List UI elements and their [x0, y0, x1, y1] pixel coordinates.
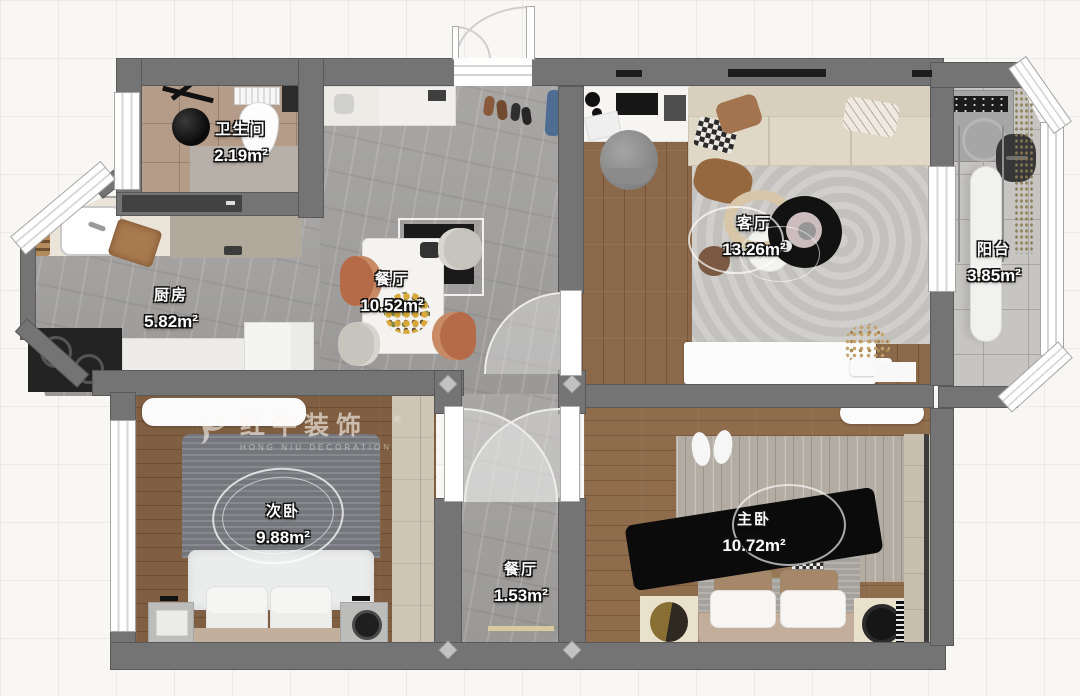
- room-label-kitchen: 厨房 5.82m²: [144, 284, 198, 332]
- bedroom2-door-leaf: [444, 406, 464, 502]
- entrance-sill: [454, 58, 532, 86]
- dining-chair-orange: [432, 312, 476, 360]
- room-name: 餐厅: [494, 558, 548, 579]
- moon-plate: [650, 602, 688, 642]
- bathroom-window: [114, 92, 140, 190]
- brand-subtitle: HONG NIU DECORATION: [240, 443, 392, 452]
- room-label-bathroom: 卫生间 2.19m²: [214, 118, 268, 166]
- room-label-dining: 餐厅 10.52m²: [360, 268, 423, 316]
- room-name: 阳台: [967, 238, 1021, 259]
- room-area: 1.53m²: [494, 586, 548, 606]
- room-name: 客厅: [722, 212, 785, 233]
- room-name: 厨房: [144, 284, 198, 305]
- balcony-right-window: [1040, 122, 1064, 356]
- side-shelf: [874, 362, 916, 382]
- wall-mark: [160, 596, 178, 601]
- master-door-leaf: [560, 406, 580, 502]
- dining-chair-gray: [338, 322, 380, 366]
- dining-chair-gray: [438, 228, 482, 270]
- brand-name: 红牛装饰: [240, 412, 368, 440]
- wall-top-left: [116, 58, 456, 86]
- door-handle: [226, 201, 235, 205]
- room-label-master: 主卧 10.72m²: [722, 508, 785, 556]
- wall-mark: [352, 596, 370, 601]
- window-dash: [616, 70, 642, 77]
- washer-panel: [952, 96, 1008, 112]
- window-dash: [728, 69, 826, 77]
- room-area: 10.72m²: [722, 536, 785, 556]
- photo-card: [156, 610, 188, 636]
- living-door-leaf: [560, 290, 582, 376]
- threshold-strip: [488, 626, 554, 631]
- room-area: 5.82m²: [144, 312, 198, 332]
- wall-kitchen-bottom: [92, 370, 464, 396]
- room-name: 卫生间: [214, 118, 268, 139]
- floor-plan-canvas: 红牛装饰 HONG NIU DECORATION ® 卫生间 2.19m² 厨房…: [0, 0, 1080, 696]
- room-area: 3.85m²: [967, 266, 1021, 286]
- ceiling-fan-body: [172, 108, 210, 146]
- vine-plant: [1014, 84, 1034, 254]
- room-name: 餐厅: [360, 268, 423, 289]
- room-label-hallway: 餐厅 1.53m²: [494, 558, 548, 606]
- room-name: 主卧: [722, 508, 785, 529]
- shoe: [496, 100, 508, 121]
- room-area: 10.52m²: [360, 296, 423, 316]
- entry-item: [428, 90, 446, 101]
- black-plate: [352, 610, 382, 640]
- room-area: 13.26m²: [722, 240, 785, 260]
- desk-speaker: [585, 92, 600, 107]
- counter-item: [224, 246, 242, 255]
- pole-line: [958, 126, 960, 262]
- table-vase: [420, 242, 440, 258]
- room-area: 2.19m²: [214, 146, 268, 166]
- wall-master-right: [930, 408, 954, 646]
- balcony-door-window: [928, 166, 956, 292]
- desk-pad: [664, 95, 686, 121]
- entrance-door-leaf-small: [452, 26, 459, 60]
- room-name: 次卧: [256, 500, 310, 521]
- brand-watermark: 红牛装饰 HONG NIU DECORATION ®: [196, 414, 401, 452]
- wall-living-bottom: [558, 384, 934, 408]
- bedroom2-window: [110, 420, 136, 632]
- wall-corridor-right-bottom: [558, 498, 586, 648]
- wall-bed2-right-bottom: [434, 498, 462, 648]
- room-label-bedroom2: 次卧 9.88m²: [256, 500, 310, 548]
- room-area: 9.88m²: [256, 528, 310, 548]
- entrance-door-leaf: [526, 6, 535, 60]
- room-label-living: 客厅 13.26m²: [722, 212, 785, 260]
- wall-bath-right: [298, 58, 324, 218]
- curtain: [924, 434, 929, 644]
- entry-cabinet-sink: [334, 94, 354, 114]
- window-dash: [912, 70, 932, 77]
- sofa-seam: [768, 116, 770, 166]
- room-label-balcony: 阳台 3.85m²: [967, 238, 1021, 286]
- wall-bottom: [110, 642, 946, 670]
- desk-monitor: [616, 93, 658, 115]
- brand-bull-icon: [196, 414, 232, 448]
- pillow-white: [710, 590, 776, 628]
- pillow-white: [780, 590, 846, 628]
- registered-mark: ®: [394, 414, 401, 424]
- wall-dining-living: [558, 86, 584, 294]
- bathroom-sliding-door: [122, 195, 242, 212]
